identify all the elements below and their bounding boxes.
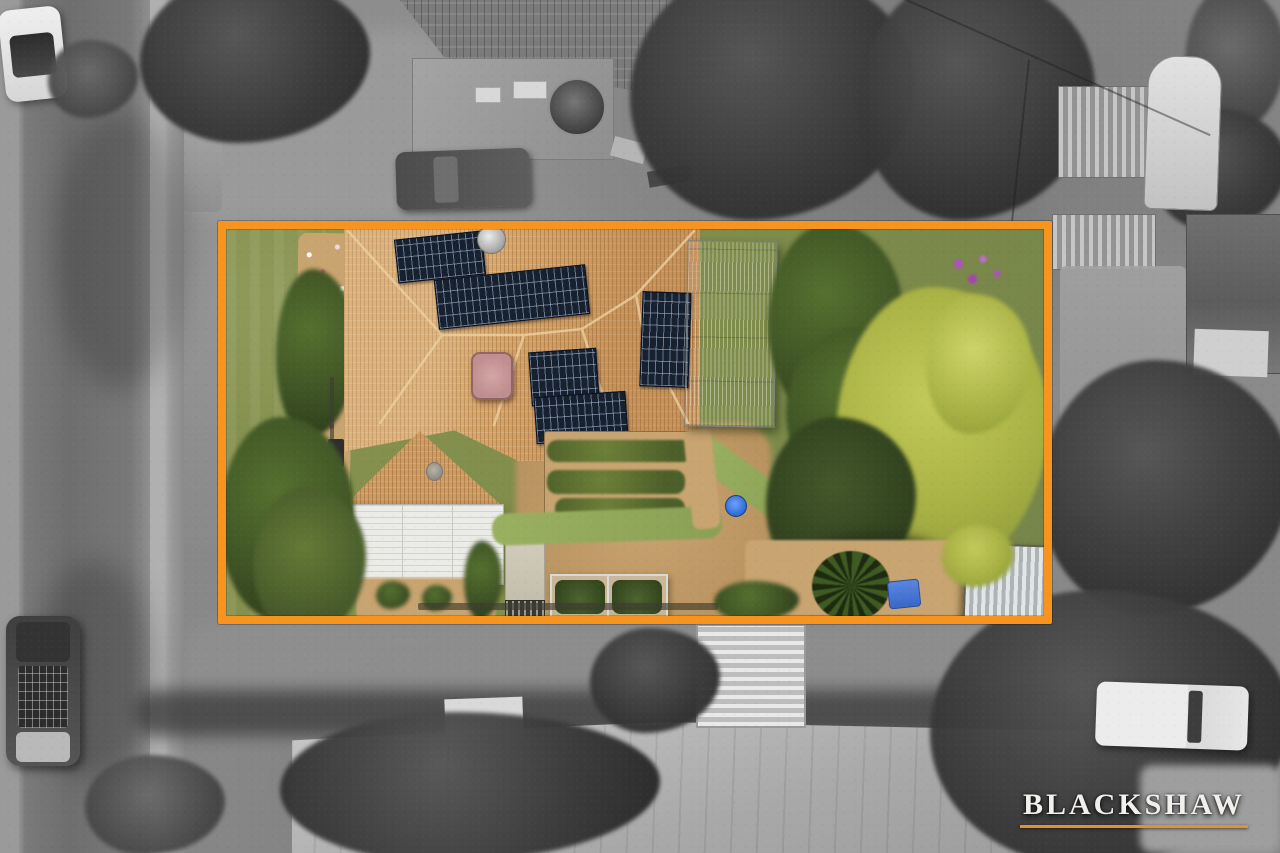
neighbour-shed — [1058, 86, 1158, 178]
caravan — [1143, 55, 1222, 211]
neighbour-trees — [1040, 360, 1280, 615]
agency-logo-text: BLACKSHAW — [1008, 788, 1260, 822]
rear-trees — [280, 712, 660, 853]
4wd-cargo-box — [16, 622, 70, 662]
parked-grey-car — [395, 148, 531, 211]
agency-watermark: BLACKSHAW — [1008, 788, 1260, 828]
aerial-photo: BLACKSHAW — [0, 0, 1280, 853]
grey-car-windshield — [433, 156, 459, 203]
ute-windshield — [1187, 691, 1203, 743]
tree-shadow-on-road — [55, 110, 185, 390]
agency-logo-underline — [1020, 825, 1248, 828]
water-tank — [548, 78, 606, 136]
skylight — [513, 81, 547, 99]
parked-white-ute — [1095, 681, 1249, 750]
4wd-roof-rack — [18, 666, 68, 728]
neighbour-shed — [1052, 214, 1156, 270]
4wd-bonnet — [16, 732, 70, 762]
parked-4wd — [6, 616, 80, 766]
property-boundary-outline — [218, 221, 1052, 624]
skylight — [475, 87, 501, 103]
driveway-crossover — [184, 130, 222, 212]
